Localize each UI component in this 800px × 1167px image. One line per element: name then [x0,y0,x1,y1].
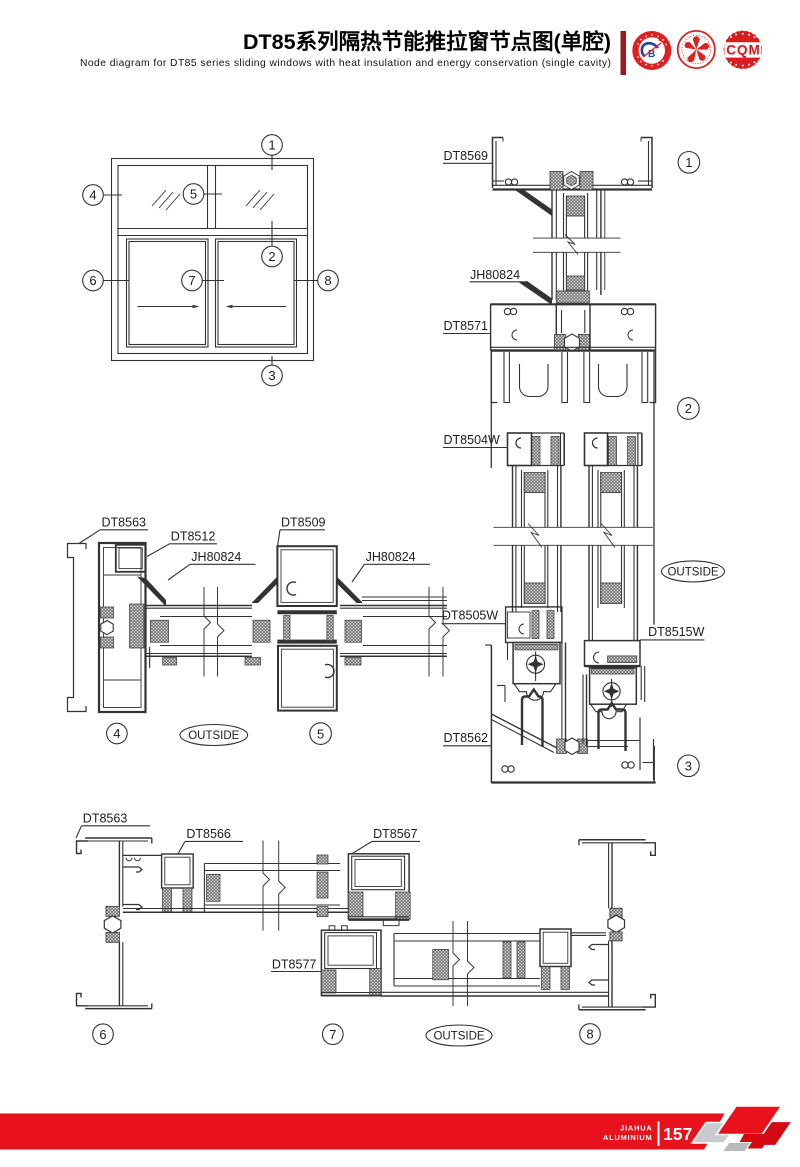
svg-text:ALUMINIUM: ALUMINIUM [603,1133,652,1142]
svg-text:DT8515W: DT8515W [648,625,704,639]
svg-text:OUTSIDE: OUTSIDE [667,567,718,579]
svg-text:DT8562: DT8562 [444,731,489,745]
svg-text:DT8563: DT8563 [83,812,128,826]
svg-text:5: 5 [190,187,197,202]
svg-text:DT8577: DT8577 [272,958,317,972]
svg-text:4: 4 [89,188,96,203]
svg-text:DT8566: DT8566 [186,827,231,841]
svg-text:5: 5 [317,726,324,741]
svg-text:3: 3 [685,759,692,774]
svg-text:1: 1 [685,155,692,170]
svg-text:157: 157 [663,1124,692,1144]
svg-text:JH80824: JH80824 [470,268,520,282]
svg-text:1: 1 [268,138,275,153]
svg-text:DT8567: DT8567 [373,827,418,841]
svg-text:OUTSIDE: OUTSIDE [433,1031,484,1043]
svg-text:2: 2 [268,249,275,264]
svg-text:DT85系列隔热节能推拉窗节点图(单腔): DT85系列隔热节能推拉窗节点图(单腔) [243,29,611,54]
svg-text:JH80824: JH80824 [191,550,241,564]
svg-text:DT8509: DT8509 [281,516,326,530]
svg-text:JIAHUA: JIAHUA [620,1124,652,1133]
svg-text:Node diagram for DT85 series s: Node diagram for DT85 series sliding win… [80,58,611,69]
svg-text:4: 4 [113,726,120,741]
svg-text:8: 8 [586,1027,593,1042]
svg-text:3: 3 [268,368,275,383]
svg-text:DT8563: DT8563 [102,516,147,530]
svg-text:DT8569: DT8569 [444,149,489,163]
svg-text:DT8571: DT8571 [444,319,489,333]
svg-text:7: 7 [188,273,195,288]
svg-text:DT8512: DT8512 [171,530,216,544]
svg-text:DT8505W: DT8505W [442,609,498,623]
svg-text:JH80824: JH80824 [366,550,416,564]
svg-text:2: 2 [685,401,692,416]
svg-text:OUTSIDE: OUTSIDE [188,730,239,742]
svg-text:6: 6 [89,273,96,288]
svg-text:8: 8 [324,273,331,288]
svg-text:CQM: CQM [726,43,760,58]
svg-text:7: 7 [329,1027,336,1042]
svg-text:6: 6 [99,1027,106,1042]
